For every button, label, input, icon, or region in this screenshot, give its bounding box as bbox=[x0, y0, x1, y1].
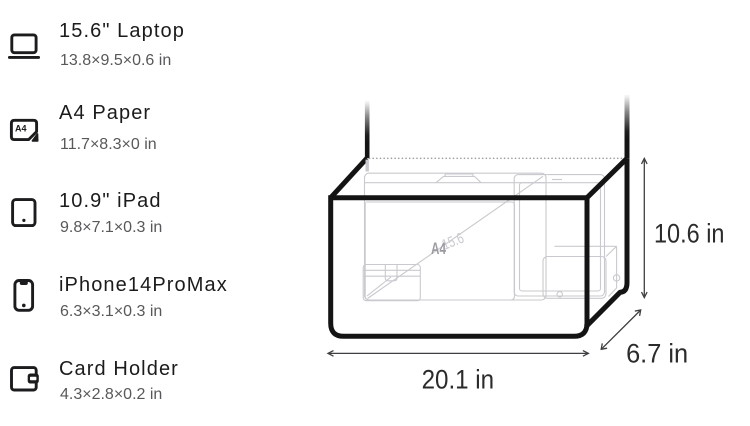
svg-text:A4: A4 bbox=[15, 124, 27, 134]
svg-text:10.6 in: 10.6 in bbox=[654, 219, 725, 249]
svg-text:6.7 in: 6.7 in bbox=[626, 339, 688, 369]
svg-text:20.1 in: 20.1 in bbox=[422, 365, 495, 395]
svg-text:15.6: 15.6 bbox=[440, 230, 467, 254]
